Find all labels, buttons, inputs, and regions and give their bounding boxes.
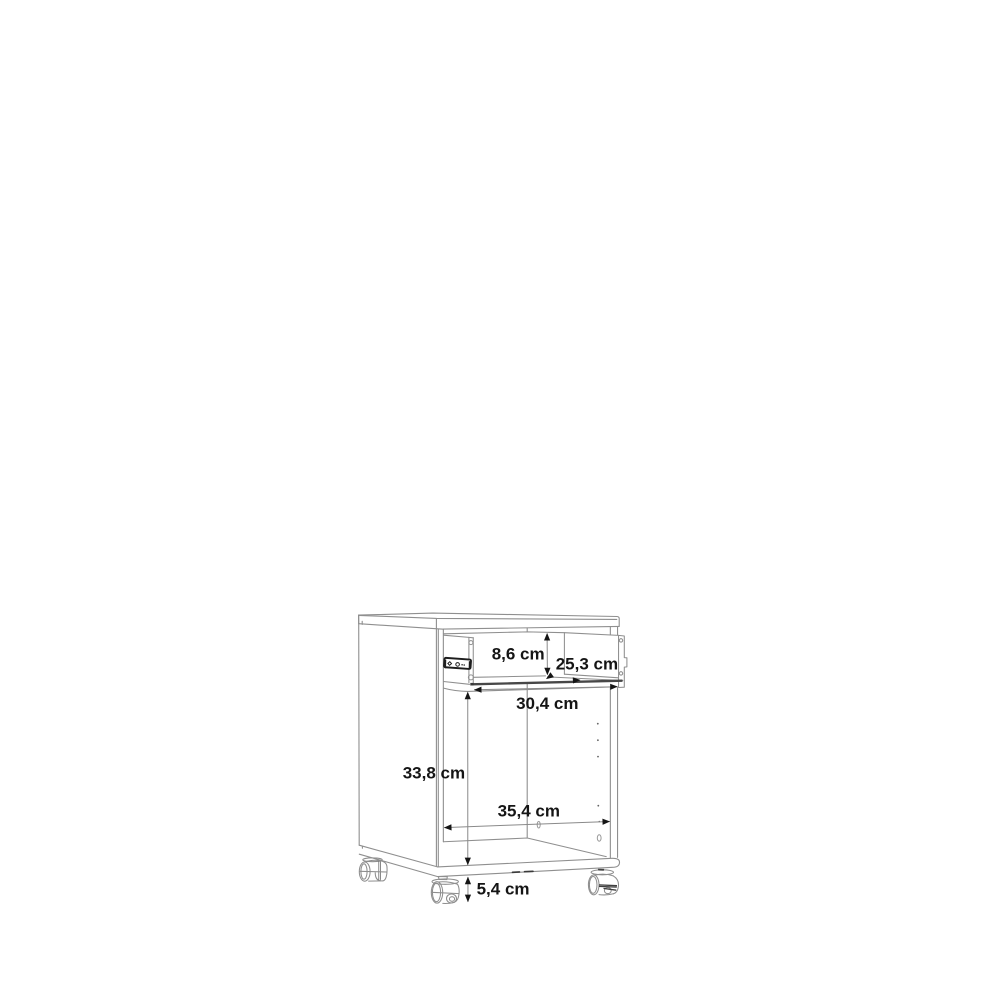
svg-text:8,6 cm: 8,6 cm: [492, 644, 545, 663]
svg-text:33,8 cm: 33,8 cm: [403, 763, 465, 782]
svg-text:25,3 cm: 25,3 cm: [556, 654, 618, 673]
svg-text:35,4 cm: 35,4 cm: [498, 801, 560, 820]
svg-text:30,4 cm: 30,4 cm: [516, 694, 578, 713]
svg-text:5,4 cm: 5,4 cm: [477, 879, 530, 898]
